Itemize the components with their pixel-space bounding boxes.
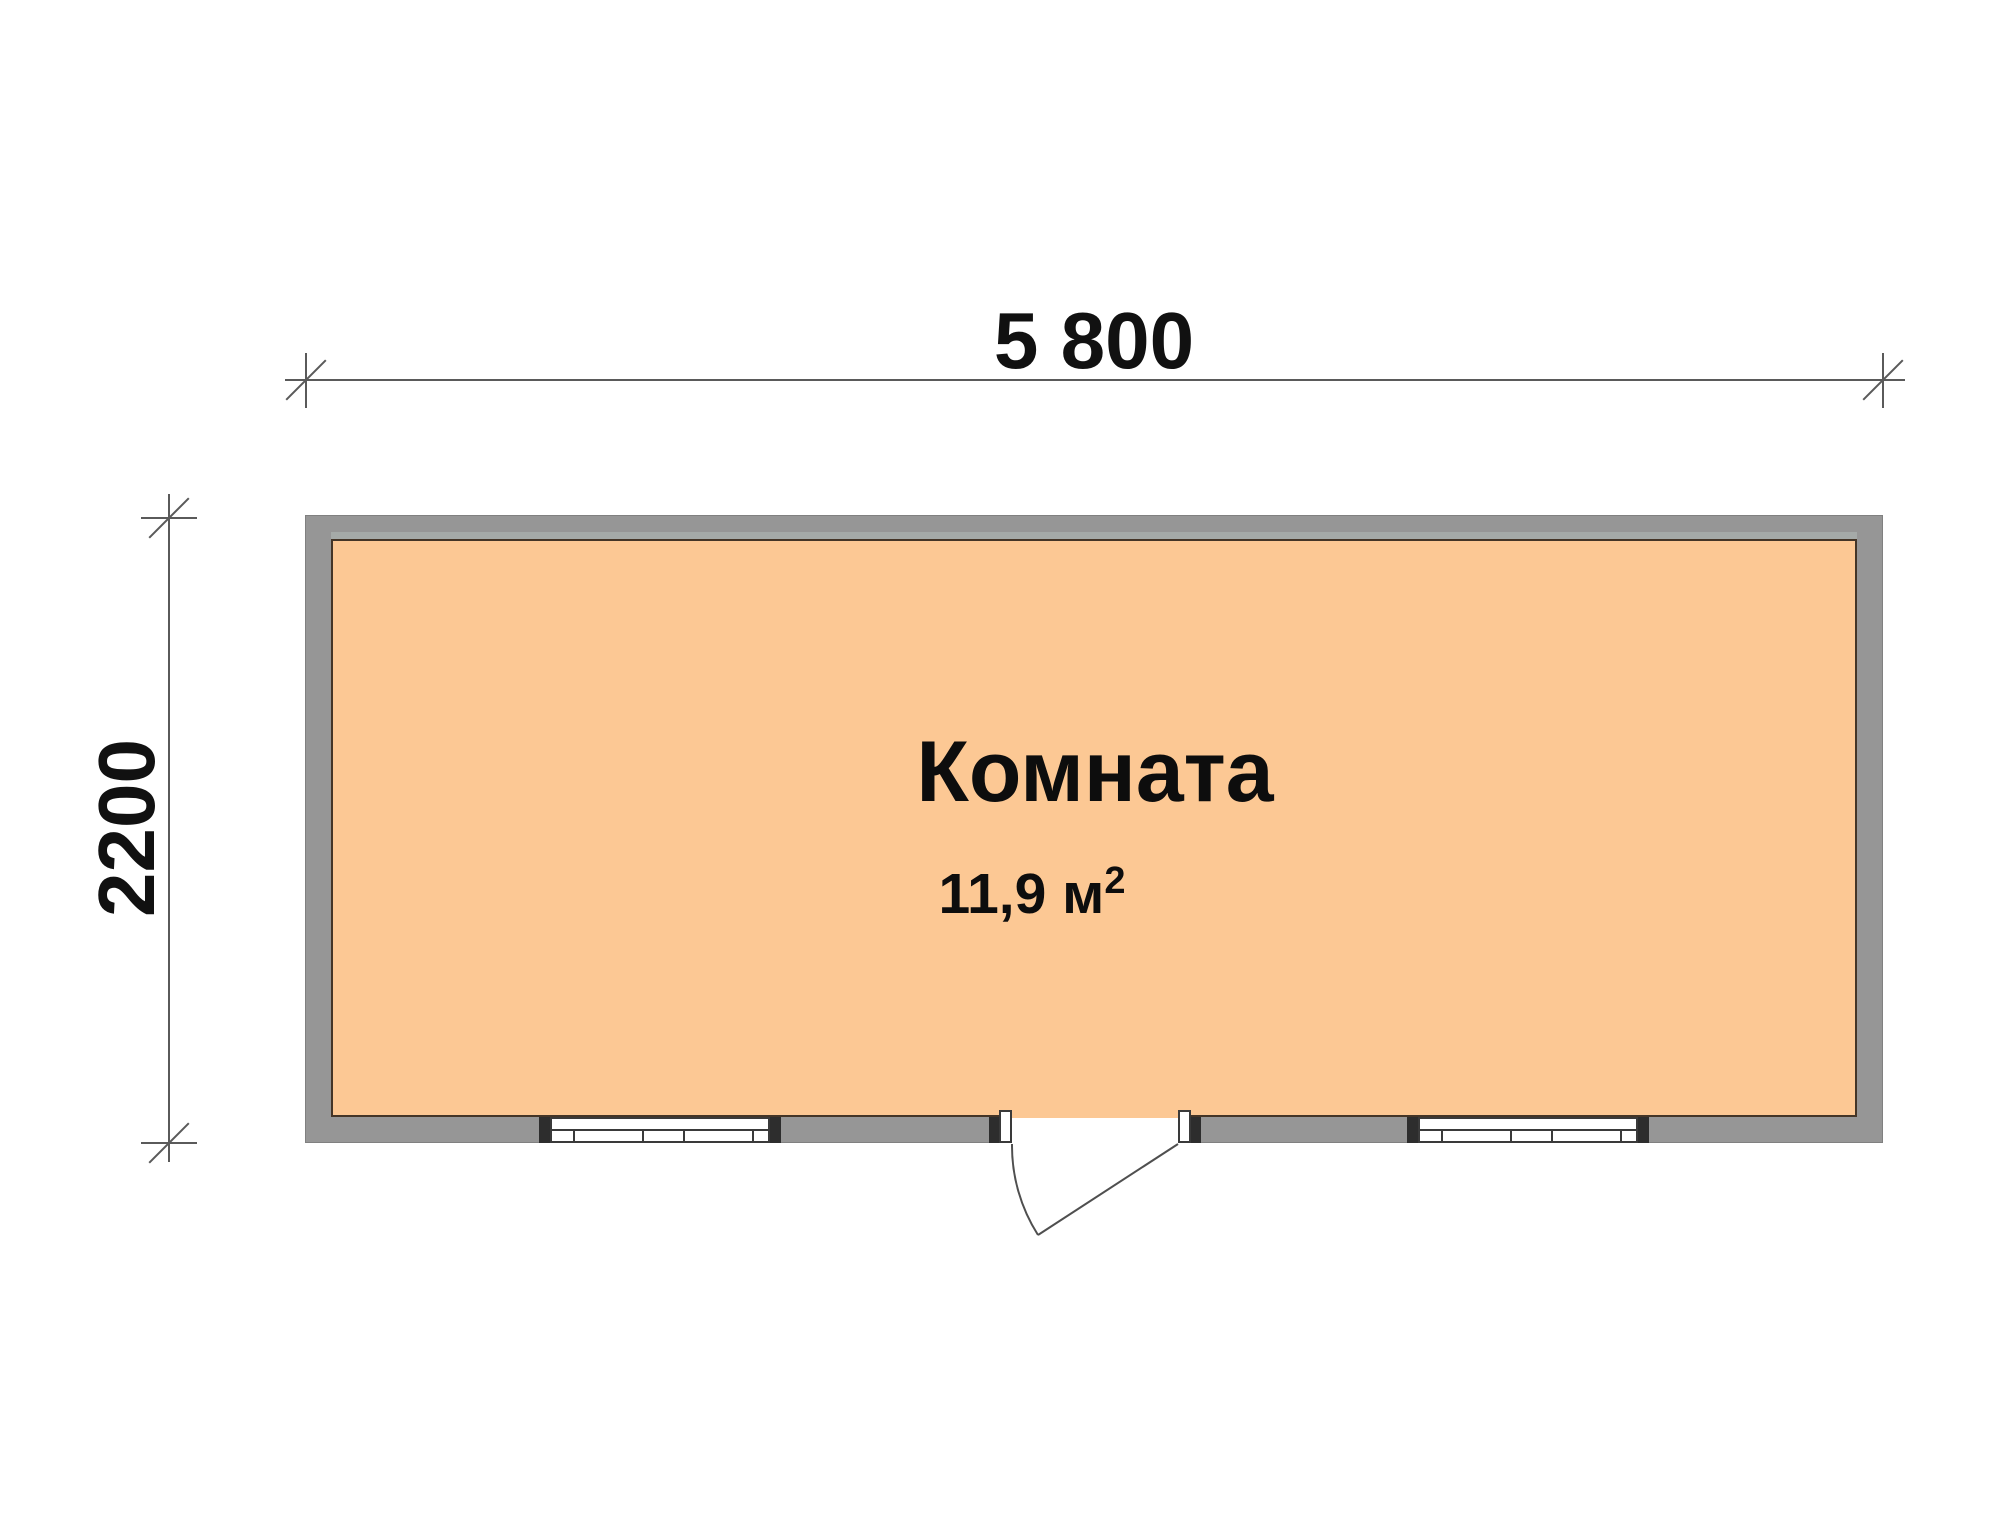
window-sill-line — [552, 1129, 768, 1131]
door-swing-arc — [1012, 1144, 1038, 1235]
door-swing-icon — [990, 1138, 1210, 1248]
room-area-value: 11,9 м — [939, 862, 1105, 926]
room-area-superscript: 2 — [1104, 860, 1125, 902]
window-mullion — [752, 1129, 754, 1141]
room-area-label: 11,9 м2 — [632, 856, 1432, 932]
window-mullion — [683, 1129, 685, 1141]
window-mullion — [1620, 1129, 1622, 1141]
wall-end-cap — [770, 1117, 781, 1143]
wall-end-cap — [539, 1117, 550, 1143]
floor-plan: 5 800 2200 Комната 11,9 м2 — [0, 0, 2000, 1538]
window-mullion — [642, 1129, 644, 1141]
door-leaf-line — [1038, 1144, 1178, 1235]
room-floor — [331, 539, 1857, 1117]
interior-wall-highlight — [331, 532, 1857, 539]
window-sill-line — [1420, 1129, 1636, 1131]
window-mullion — [1510, 1129, 1512, 1141]
window-mullion — [1551, 1129, 1553, 1141]
width-dimension-label: 5 800 — [894, 303, 1294, 379]
wall-end-cap — [1638, 1117, 1649, 1143]
height-dimension-label: 2200 — [87, 628, 167, 1028]
window-right — [1418, 1117, 1638, 1143]
window-mullion — [1441, 1129, 1443, 1141]
room-name-label: Комната — [695, 722, 1495, 822]
window-left — [550, 1117, 770, 1143]
window-mullion — [573, 1129, 575, 1141]
wall-end-cap — [1407, 1117, 1418, 1143]
